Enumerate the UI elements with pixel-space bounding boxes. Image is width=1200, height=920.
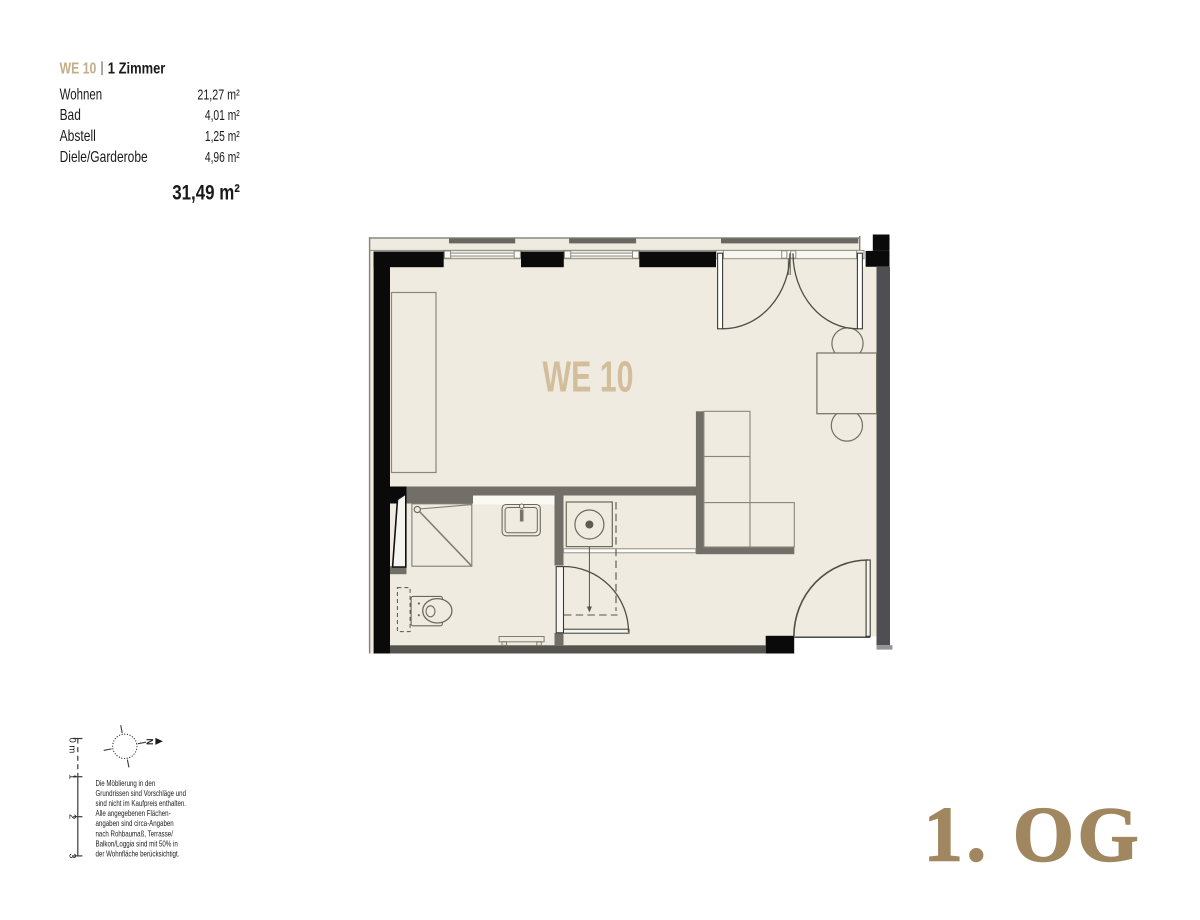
svg-text:4,01 m²: 4,01 m² xyxy=(205,107,240,123)
svg-text:Balkon/Loggia sind mit 50% in: Balkon/Loggia sind mit 50% in xyxy=(96,838,178,848)
svg-text:Wohnen: Wohnen xyxy=(60,86,102,103)
svg-text:3: 3 xyxy=(67,853,78,858)
svg-text:Diele/Garderobe: Diele/Garderobe xyxy=(60,147,148,165)
svg-text:Grundrissen sind Vorschläge un: Grundrissen sind Vorschläge und xyxy=(96,788,187,798)
svg-text:WE 10: WE 10 xyxy=(60,59,97,77)
svg-text:sind nicht im Kaufpreis enthal: sind nicht im Kaufpreis enthalten. xyxy=(96,798,187,808)
svg-text:2: 2 xyxy=(67,814,78,819)
svg-text:1 Zimmer: 1 Zimmer xyxy=(108,60,166,77)
svg-text:Alle angegebenen Flächen-: Alle angegebenen Flächen- xyxy=(96,808,172,818)
svg-text:1: 1 xyxy=(67,774,78,779)
svg-text:angaben sind circa-Angaben: angaben sind circa-Angaben xyxy=(96,818,174,828)
svg-text:Die Möblierung in den: Die Möblierung in den xyxy=(96,778,156,788)
svg-text:1. OG: 1. OG xyxy=(924,790,1143,877)
svg-text:nach Rohbaumaß, Terrasse/: nach Rohbaumaß, Terrasse/ xyxy=(96,828,174,838)
svg-text:Bad: Bad xyxy=(60,105,81,123)
svg-text:N: N xyxy=(145,739,155,746)
svg-text:der Wohnfläche berücksichtigt.: der Wohnfläche berücksichtigt. xyxy=(96,848,180,858)
svg-text:WE 10: WE 10 xyxy=(543,352,634,401)
svg-text:31,49 m²: 31,49 m² xyxy=(172,180,240,205)
svg-text:1,25 m²: 1,25 m² xyxy=(205,128,240,144)
svg-text:0 m: 0 m xyxy=(67,738,78,754)
svg-text:21,27 m²: 21,27 m² xyxy=(197,86,240,103)
svg-text:Abstell: Abstell xyxy=(60,126,96,144)
svg-text:4,96 m²: 4,96 m² xyxy=(205,149,240,165)
